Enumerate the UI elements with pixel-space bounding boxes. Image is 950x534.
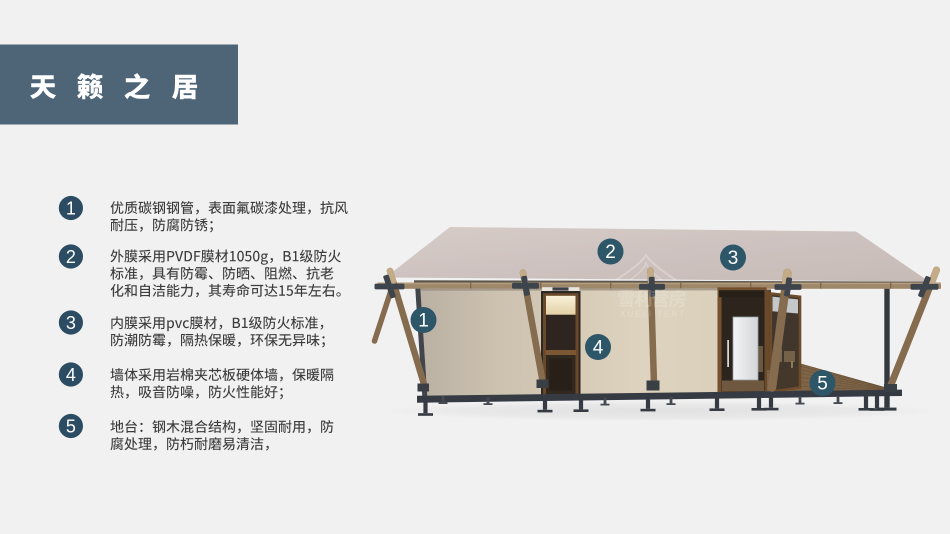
svg-text:2: 2	[605, 242, 616, 263]
svg-text:5: 5	[66, 416, 76, 436]
svg-text:1: 1	[418, 311, 429, 332]
svg-text:4: 4	[66, 365, 76, 385]
svg-text:3: 3	[728, 248, 739, 269]
svg-text:2: 2	[66, 247, 76, 267]
svg-text:5: 5	[817, 374, 828, 395]
svg-text:4: 4	[593, 338, 604, 359]
svg-text:1: 1	[66, 198, 76, 218]
svg-text:3: 3	[66, 313, 76, 333]
svg-text:XUELI TENT: XUELI TENT	[620, 310, 686, 319]
